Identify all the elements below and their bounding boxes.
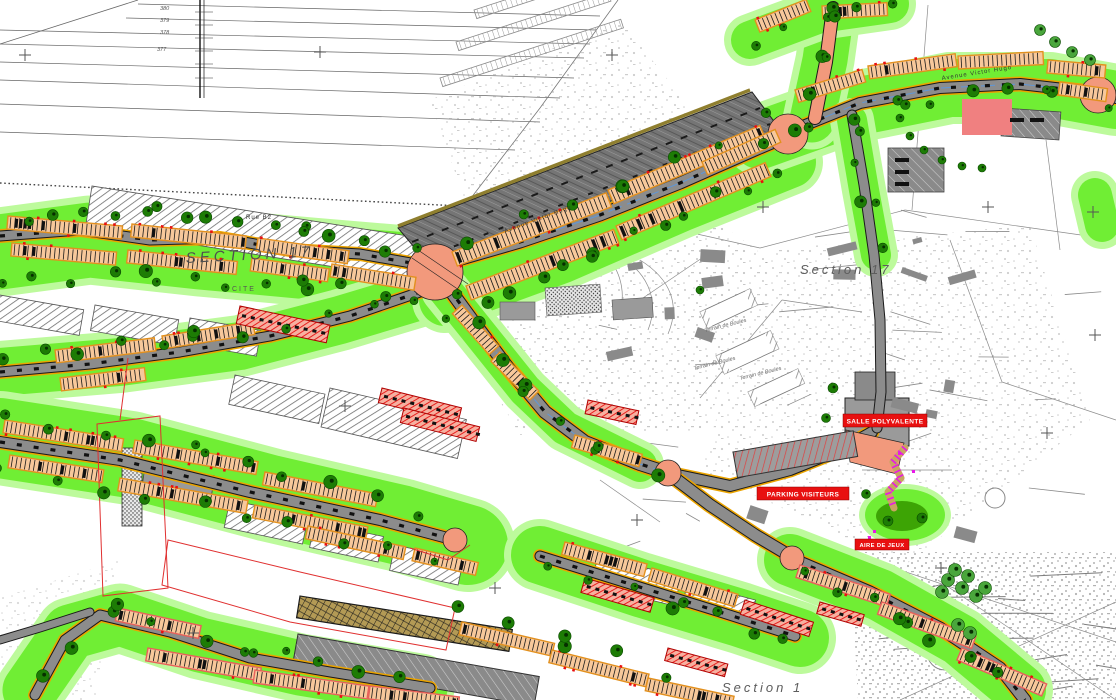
red-building bbox=[665, 648, 728, 677]
contour-377-label: 377 bbox=[157, 47, 167, 53]
rue-b2-label: Rue B2 bbox=[246, 215, 272, 221]
red-label-salle-text: SALLE POLYVALENTE bbox=[847, 419, 924, 426]
section-17-right-label: Section 17 bbox=[800, 262, 891, 277]
red-label-jeux: AIRE DE JEUX bbox=[855, 539, 909, 550]
contour-380-label: 380 bbox=[160, 6, 170, 12]
site-plan-stage: SECTION 17 CITE Section 17 Section 1 Rue… bbox=[0, 0, 1116, 700]
red-label-jeux-text: AIRE DE JEUX bbox=[859, 543, 904, 549]
cite-label: CITE bbox=[232, 286, 256, 293]
housing-row bbox=[645, 678, 734, 700]
site-plan-canvas: SECTION 17 CITE Section 17 Section 1 Rue… bbox=[0, 0, 1116, 700]
red-label-salle: SALLE POLYVALENTE bbox=[843, 414, 927, 427]
housing-row bbox=[548, 648, 649, 689]
section-1-label: Section 1 bbox=[722, 680, 803, 695]
red-label-parking: PARKING VISITEURS bbox=[757, 487, 849, 500]
contour-378-label: 378 bbox=[160, 30, 170, 36]
red-label-parking-text: PARKING VISITEURS bbox=[767, 492, 840, 499]
contour-379-label: 379 bbox=[160, 18, 169, 24]
